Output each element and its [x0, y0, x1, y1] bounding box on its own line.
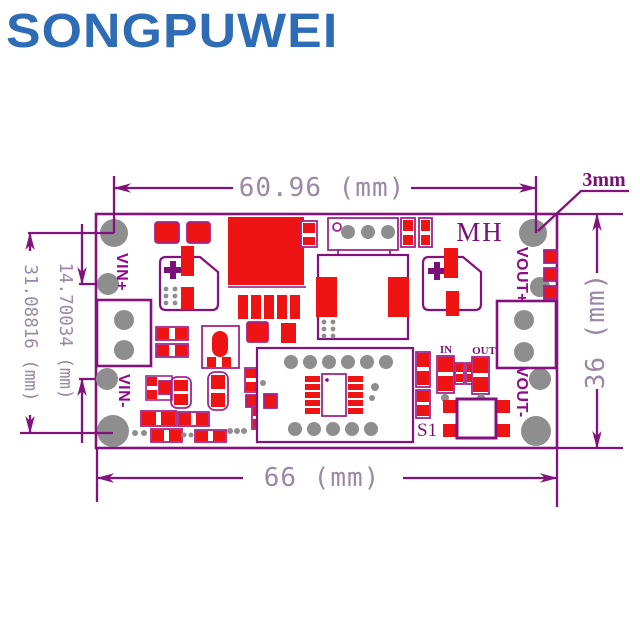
dim-top-width-value: 60.96 (mm) [239, 173, 406, 203]
dim-left-inner: 14.70034 (mm) [55, 224, 82, 443]
vout-minus-label: VOUT- [513, 366, 530, 417]
diode-footprint [301, 221, 317, 247]
led-out-label: OUT [472, 345, 497, 357]
capacitor-footprint [155, 222, 179, 243]
inductor-footprint [228, 217, 306, 287]
pcb-dimension-diagram: MH VIN+ VIN- VOUT+ VOUT- IN OUT S1 [0, 0, 640, 640]
switch-label: S1 [417, 420, 437, 441]
pad-row [238, 295, 300, 319]
dim-left-outer-value: 31.08816 (mm) [20, 265, 40, 402]
dim-right-height-value: 36 (mm) [581, 273, 611, 390]
large-cap-center [316, 255, 409, 339]
vin-minus-label: VIN- [115, 374, 132, 408]
dim-left-inner-value: 14.70034 (mm) [55, 263, 75, 400]
terminal-block-left [97, 300, 151, 366]
hole-bottom-right [521, 416, 551, 446]
led-in-label: IN [440, 344, 452, 356]
product-image: SONGPUWEI [0, 0, 640, 640]
hole-top-right [519, 219, 547, 247]
pcb-board: MH VIN+ VIN- VOUT+ VOUT- IN OUT S1 [79, 214, 557, 448]
pad-vout-minus [529, 368, 551, 390]
dim-bottom-width: 66 (mm) [97, 449, 557, 507]
board-model-label: MH [456, 217, 504, 247]
vin-plus-label: VIN+ [113, 253, 130, 291]
dim-right-height: 36 (mm) [558, 214, 623, 448]
pad-vin-minus [96, 368, 118, 390]
dim-bottom-width-value: 66 (mm) [264, 463, 381, 493]
capacitor-footprint [187, 222, 210, 243]
dim-hole-value: 3mm [582, 169, 626, 191]
terminal-block-right [497, 301, 556, 368]
hole-bottom-left [97, 415, 129, 447]
vout-plus-label: VOUT+ [513, 247, 530, 303]
main-ic-footprint [257, 348, 413, 442]
